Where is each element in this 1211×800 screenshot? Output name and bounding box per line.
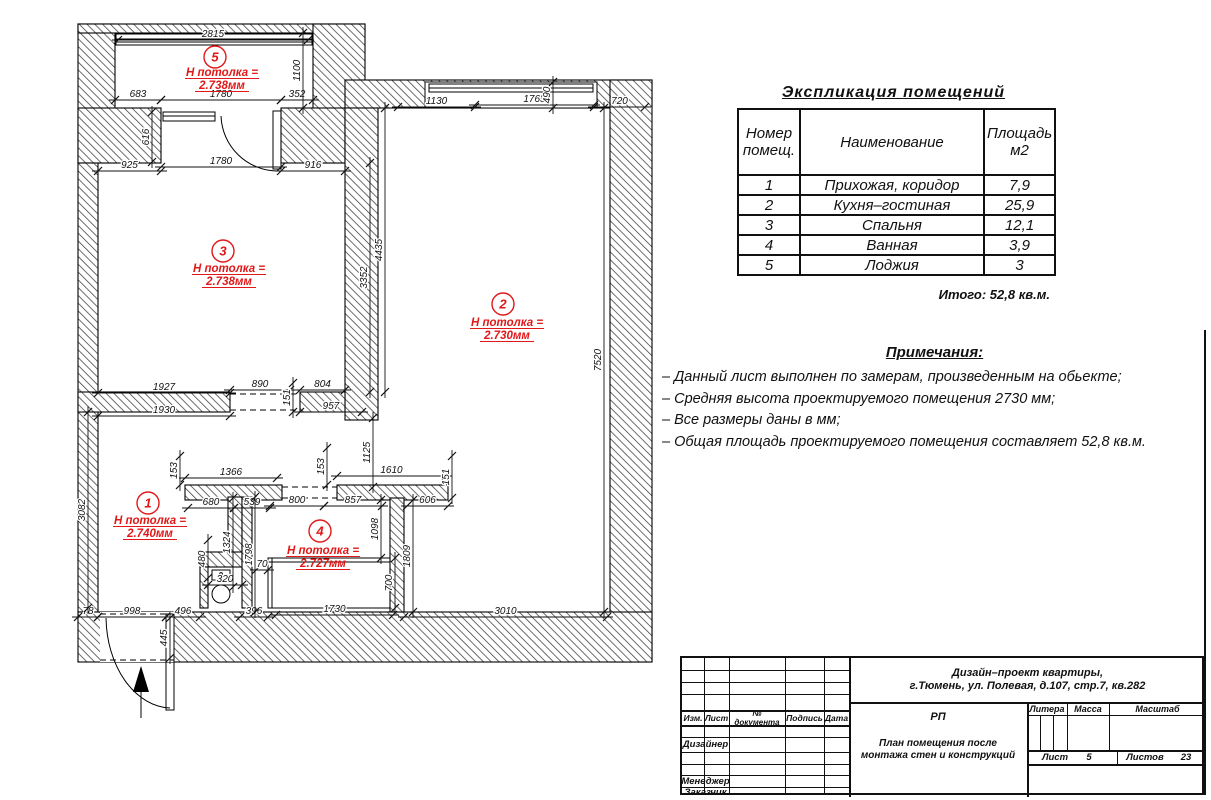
svg-text:5: 5 (211, 50, 219, 65)
wall-segment (200, 567, 208, 608)
col-list: Лист (704, 710, 729, 725)
floor-plan: .wall{fill:url(#hatch);stroke:#000;strok… (0, 0, 660, 760)
doc-title-line2: монтажа стен и конструкций (849, 750, 1027, 762)
svg-text:2.738мм: 2.738мм (198, 80, 245, 92)
role-client: Заказчик (682, 787, 729, 797)
dim-h: 683 (109, 89, 167, 104)
svg-text:2.740мм: 2.740мм (126, 528, 173, 540)
svg-text:1730: 1730 (323, 604, 346, 615)
note-item: – Общая площадь проектируемого помещения… (662, 432, 1207, 454)
col-izm: Изм. (682, 710, 704, 725)
svg-text:683: 683 (130, 89, 147, 100)
table-cell: 5 (738, 255, 800, 275)
litera-label: Литера (1027, 702, 1067, 715)
masshtab-label: Масштаб (1109, 702, 1206, 715)
svg-text:320: 320 (217, 574, 234, 585)
svg-text:1780: 1780 (210, 156, 233, 167)
svg-text:153: 153 (169, 462, 180, 479)
table-row: 1Прихожая, коридор7,9 (738, 175, 1055, 195)
svg-text:496: 496 (175, 606, 192, 617)
svg-text:3: 3 (219, 244, 227, 259)
wall-segment (610, 80, 652, 662)
svg-text:857: 857 (345, 495, 362, 506)
svg-text:720: 720 (611, 96, 628, 107)
svg-text:490: 490 (542, 86, 553, 103)
doc-title-line1: План помещения после (849, 738, 1027, 750)
role-manager: Менеджер (682, 775, 729, 787)
svg-text:151: 151 (282, 389, 293, 406)
room-label: 5Н потолка =2.738мм (185, 46, 259, 92)
table-cell: 4 (738, 235, 800, 255)
svg-text:700: 700 (384, 574, 395, 591)
table-cell: Ванная (800, 235, 984, 255)
table-cell: Кухня–гостиная (800, 195, 984, 215)
svg-text:3010: 3010 (494, 606, 517, 617)
svg-text:890: 890 (252, 379, 269, 390)
table-cell: Прихожая, коридор (800, 175, 984, 195)
col-date: Дата (824, 710, 849, 725)
dim-h: 352 (275, 89, 319, 104)
svg-text:1324: 1324 (222, 531, 233, 554)
table-cell: 25,9 (984, 195, 1055, 215)
sheets-label: Листов (1123, 750, 1167, 764)
project-name: Дизайн–проект квартиры, г.Тюмень, ул. По… (849, 658, 1206, 702)
svg-text:Н потолка =: Н потолка = (114, 515, 186, 527)
svg-text:70: 70 (256, 559, 268, 570)
svg-text:1809: 1809 (402, 544, 413, 567)
kitchen-window (425, 82, 597, 108)
svg-text:Н потолка =: Н потолка = (471, 317, 543, 329)
sheets-value: 23 (1173, 750, 1199, 764)
svg-text:Н потолка =: Н потолка = (186, 67, 258, 79)
dim-v: 153 (316, 442, 331, 491)
col-header-number: Номер помещ. (738, 109, 800, 175)
table-cell: 2 (738, 195, 800, 215)
col-sign: Подпись (785, 710, 824, 725)
svg-text:1130: 1130 (426, 96, 448, 107)
project-line2: г.Тюмень, ул. Полевая, д.107, стр.7, кв.… (910, 680, 1146, 693)
total-area: Итого: 52,8 кв.м. (737, 287, 1050, 302)
sheet-label: Лист (1035, 750, 1075, 764)
notes-title: Примечания: (662, 344, 1207, 361)
wall-segment (345, 108, 378, 420)
svg-text:396: 396 (246, 606, 263, 617)
doc-title-cell: РП План помещения после монтажа стен и к… (849, 702, 1027, 797)
table-row: 3Спальня12,1 (738, 215, 1055, 235)
svg-text:1: 1 (144, 496, 151, 511)
svg-text:151: 151 (441, 469, 452, 486)
svg-text:957: 957 (323, 401, 340, 412)
project-line1: Дизайн–проект квартиры, (952, 667, 1103, 680)
wall-segment (281, 108, 345, 163)
table-cell: 3 (984, 255, 1055, 275)
note-item: – Данный лист выполнен по замерам, произ… (662, 367, 1207, 389)
svg-text:606: 606 (419, 495, 436, 506)
svg-text:1125: 1125 (362, 441, 373, 463)
title-block: Изм. Лист № документа Подпись Дата Дизай… (680, 656, 1204, 795)
drawing-sheet: { "explication": { "title": "Экспликация… (0, 0, 1211, 800)
dim-v: 153 (169, 450, 184, 491)
room-label: 1Н потолка =2.740мм (113, 492, 187, 540)
svg-text:925: 925 (121, 160, 138, 171)
table-row: 5Лоджия3 (738, 255, 1055, 275)
notes-block: Примечания: – Данный лист выполнен по за… (662, 344, 1207, 453)
scale-section: Литера Масса Масштаб Лист 5 Листов 23 (1027, 702, 1206, 797)
room-label: 2Н потолка =2.730мм (470, 293, 544, 342)
sheet-value: 5 (1079, 750, 1099, 764)
svg-text:480: 480 (197, 550, 208, 567)
dim-h: 1780 (155, 156, 287, 171)
svg-text:2.727мм: 2.727мм (299, 558, 346, 570)
table-cell: 1 (738, 175, 800, 195)
dim-v: 7520 (593, 102, 608, 618)
table-cell: 3 (738, 215, 800, 235)
svg-text:7520: 7520 (593, 348, 604, 371)
table-row: 4Ванная3,9 (738, 235, 1055, 255)
svg-text:1798: 1798 (244, 543, 255, 566)
svg-text:2.730мм: 2.730мм (483, 330, 530, 342)
notes-list: – Данный лист выполнен по замерам, произ… (662, 367, 1207, 453)
dim-h: 1366 (179, 467, 283, 482)
svg-text:2: 2 (498, 297, 507, 312)
svg-text:3352: 3352 (359, 266, 370, 289)
dim-h: 320 (202, 574, 248, 589)
svg-text:1927: 1927 (153, 382, 176, 393)
svg-text:4: 4 (315, 524, 324, 539)
dim-v: 1125 (362, 412, 377, 493)
svg-text:Н потолка =: Н потолка = (287, 545, 359, 557)
table-cell: 3,9 (984, 235, 1055, 255)
table-cell: Спальня (800, 215, 984, 235)
stage: РП (849, 710, 1027, 724)
role-designer: Дизайнер (682, 737, 729, 752)
svg-text:800: 800 (289, 495, 306, 506)
svg-text:539: 539 (244, 497, 261, 508)
svg-text:4435: 4435 (374, 238, 385, 261)
svg-text:153: 153 (316, 458, 327, 475)
svg-text:616: 616 (141, 128, 152, 145)
explication-table: Номер помещ. Наименование Площадь м2 1Пр… (737, 108, 1056, 276)
table-cell: Лоджия (800, 255, 984, 275)
svg-text:1930: 1930 (153, 405, 176, 416)
svg-text:Н потолка =: Н потолка = (193, 263, 265, 275)
dim-h: 1610 (331, 465, 452, 480)
svg-text:1098: 1098 (370, 517, 381, 540)
svg-text:680: 680 (203, 497, 220, 508)
note-item: – Все размеры даны в мм; (662, 410, 1207, 432)
room-label: 3Н потолка =2.738мм (192, 240, 266, 288)
svg-text:445: 445 (159, 629, 170, 646)
svg-text:3082: 3082 (77, 498, 88, 521)
svg-text:998: 998 (124, 606, 141, 617)
note-item: – Средняя высота проектируемого помещени… (662, 389, 1207, 411)
svg-text:804: 804 (314, 379, 331, 390)
col-doc: № документа (729, 710, 785, 725)
entrance-arrow-icon (133, 666, 149, 692)
massa-label: Масса (1067, 702, 1109, 715)
svg-text:916: 916 (305, 160, 322, 171)
table-cell: 12,1 (984, 215, 1055, 235)
svg-text:1610: 1610 (380, 465, 403, 476)
svg-text:2815: 2815 (201, 29, 225, 40)
col-header-name: Наименование (800, 109, 984, 175)
table-cell: 7,9 (984, 175, 1055, 195)
svg-text:1366: 1366 (220, 467, 243, 478)
walls (78, 24, 652, 662)
explication-title: Экспликация помещений (737, 84, 1050, 102)
svg-text:2.738мм: 2.738мм (205, 276, 252, 288)
col-header-area: Площадь м2 (984, 109, 1055, 175)
entrance-door (100, 612, 174, 718)
svg-text:1100: 1100 (292, 59, 303, 81)
table-row: 2Кухня–гостиная25,9 (738, 195, 1055, 215)
